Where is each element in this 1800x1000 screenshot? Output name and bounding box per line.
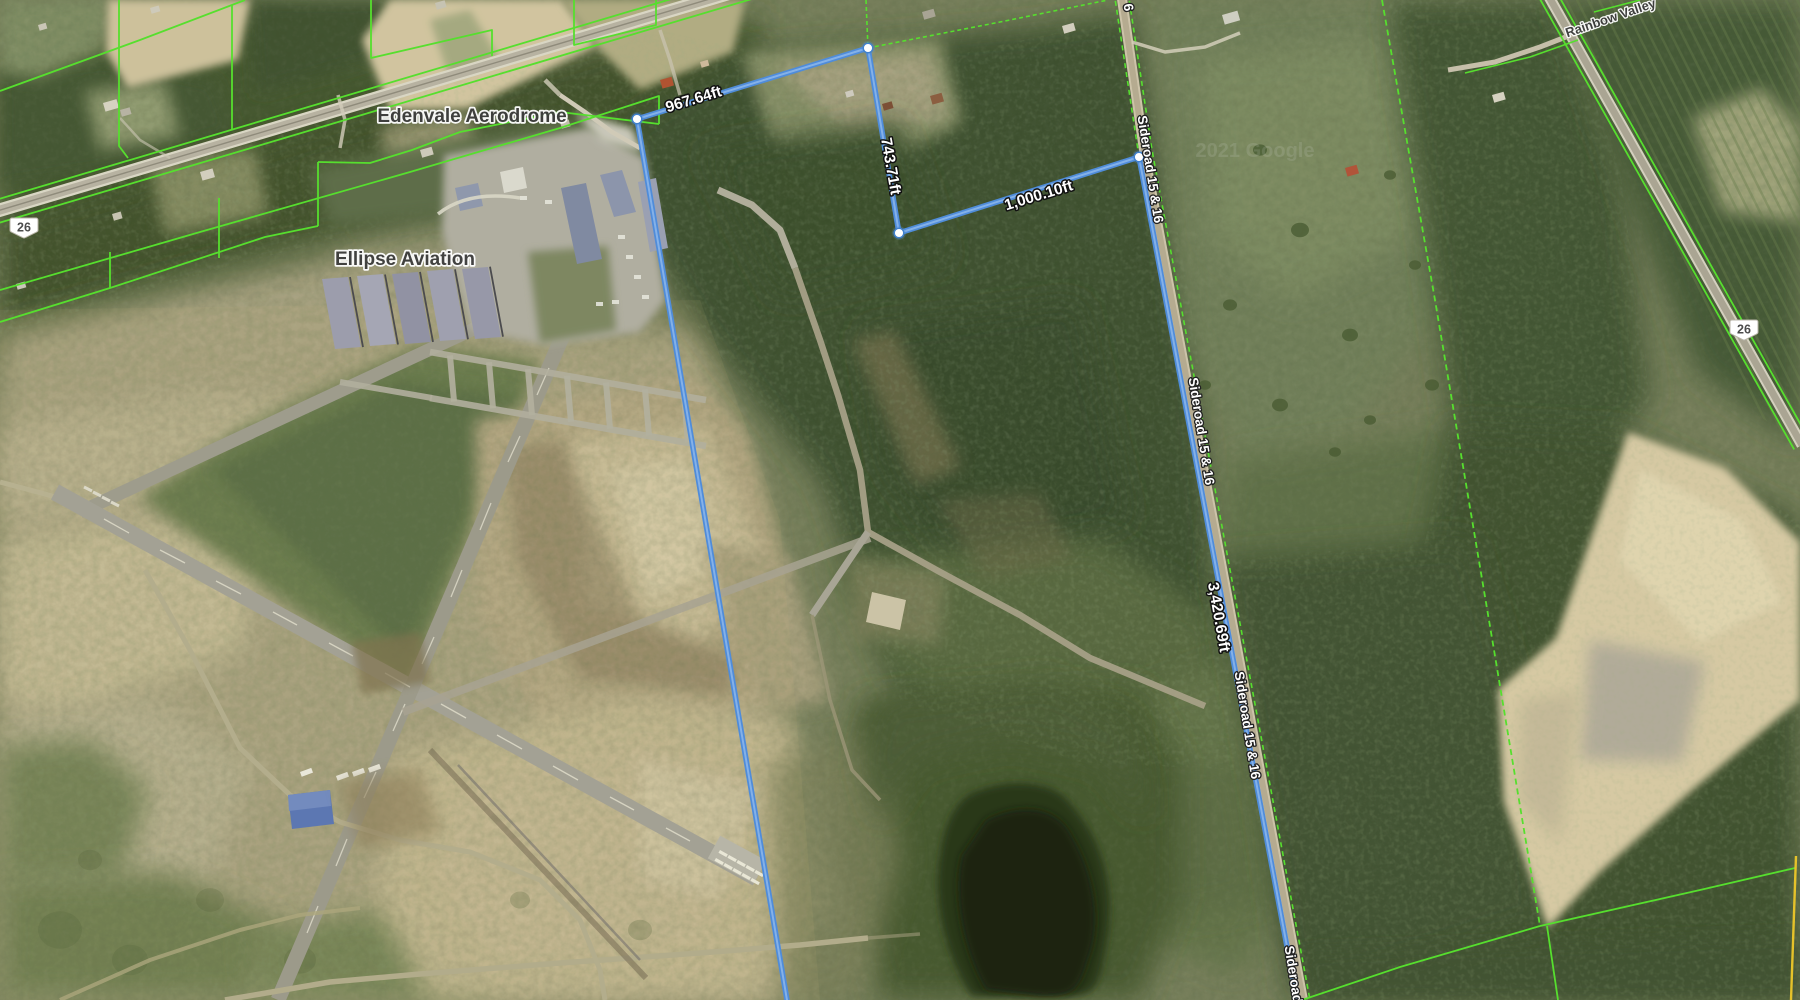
svg-text:Edenvale Aerodrome: Edenvale Aerodrome [377,106,566,127]
svg-text:26: 26 [1737,323,1751,337]
svg-text:26: 26 [17,221,31,235]
svg-text:2021 Google: 2021 Google [1196,140,1315,162]
svg-text:Ellipse Aviation: Ellipse Aviation [335,249,475,270]
